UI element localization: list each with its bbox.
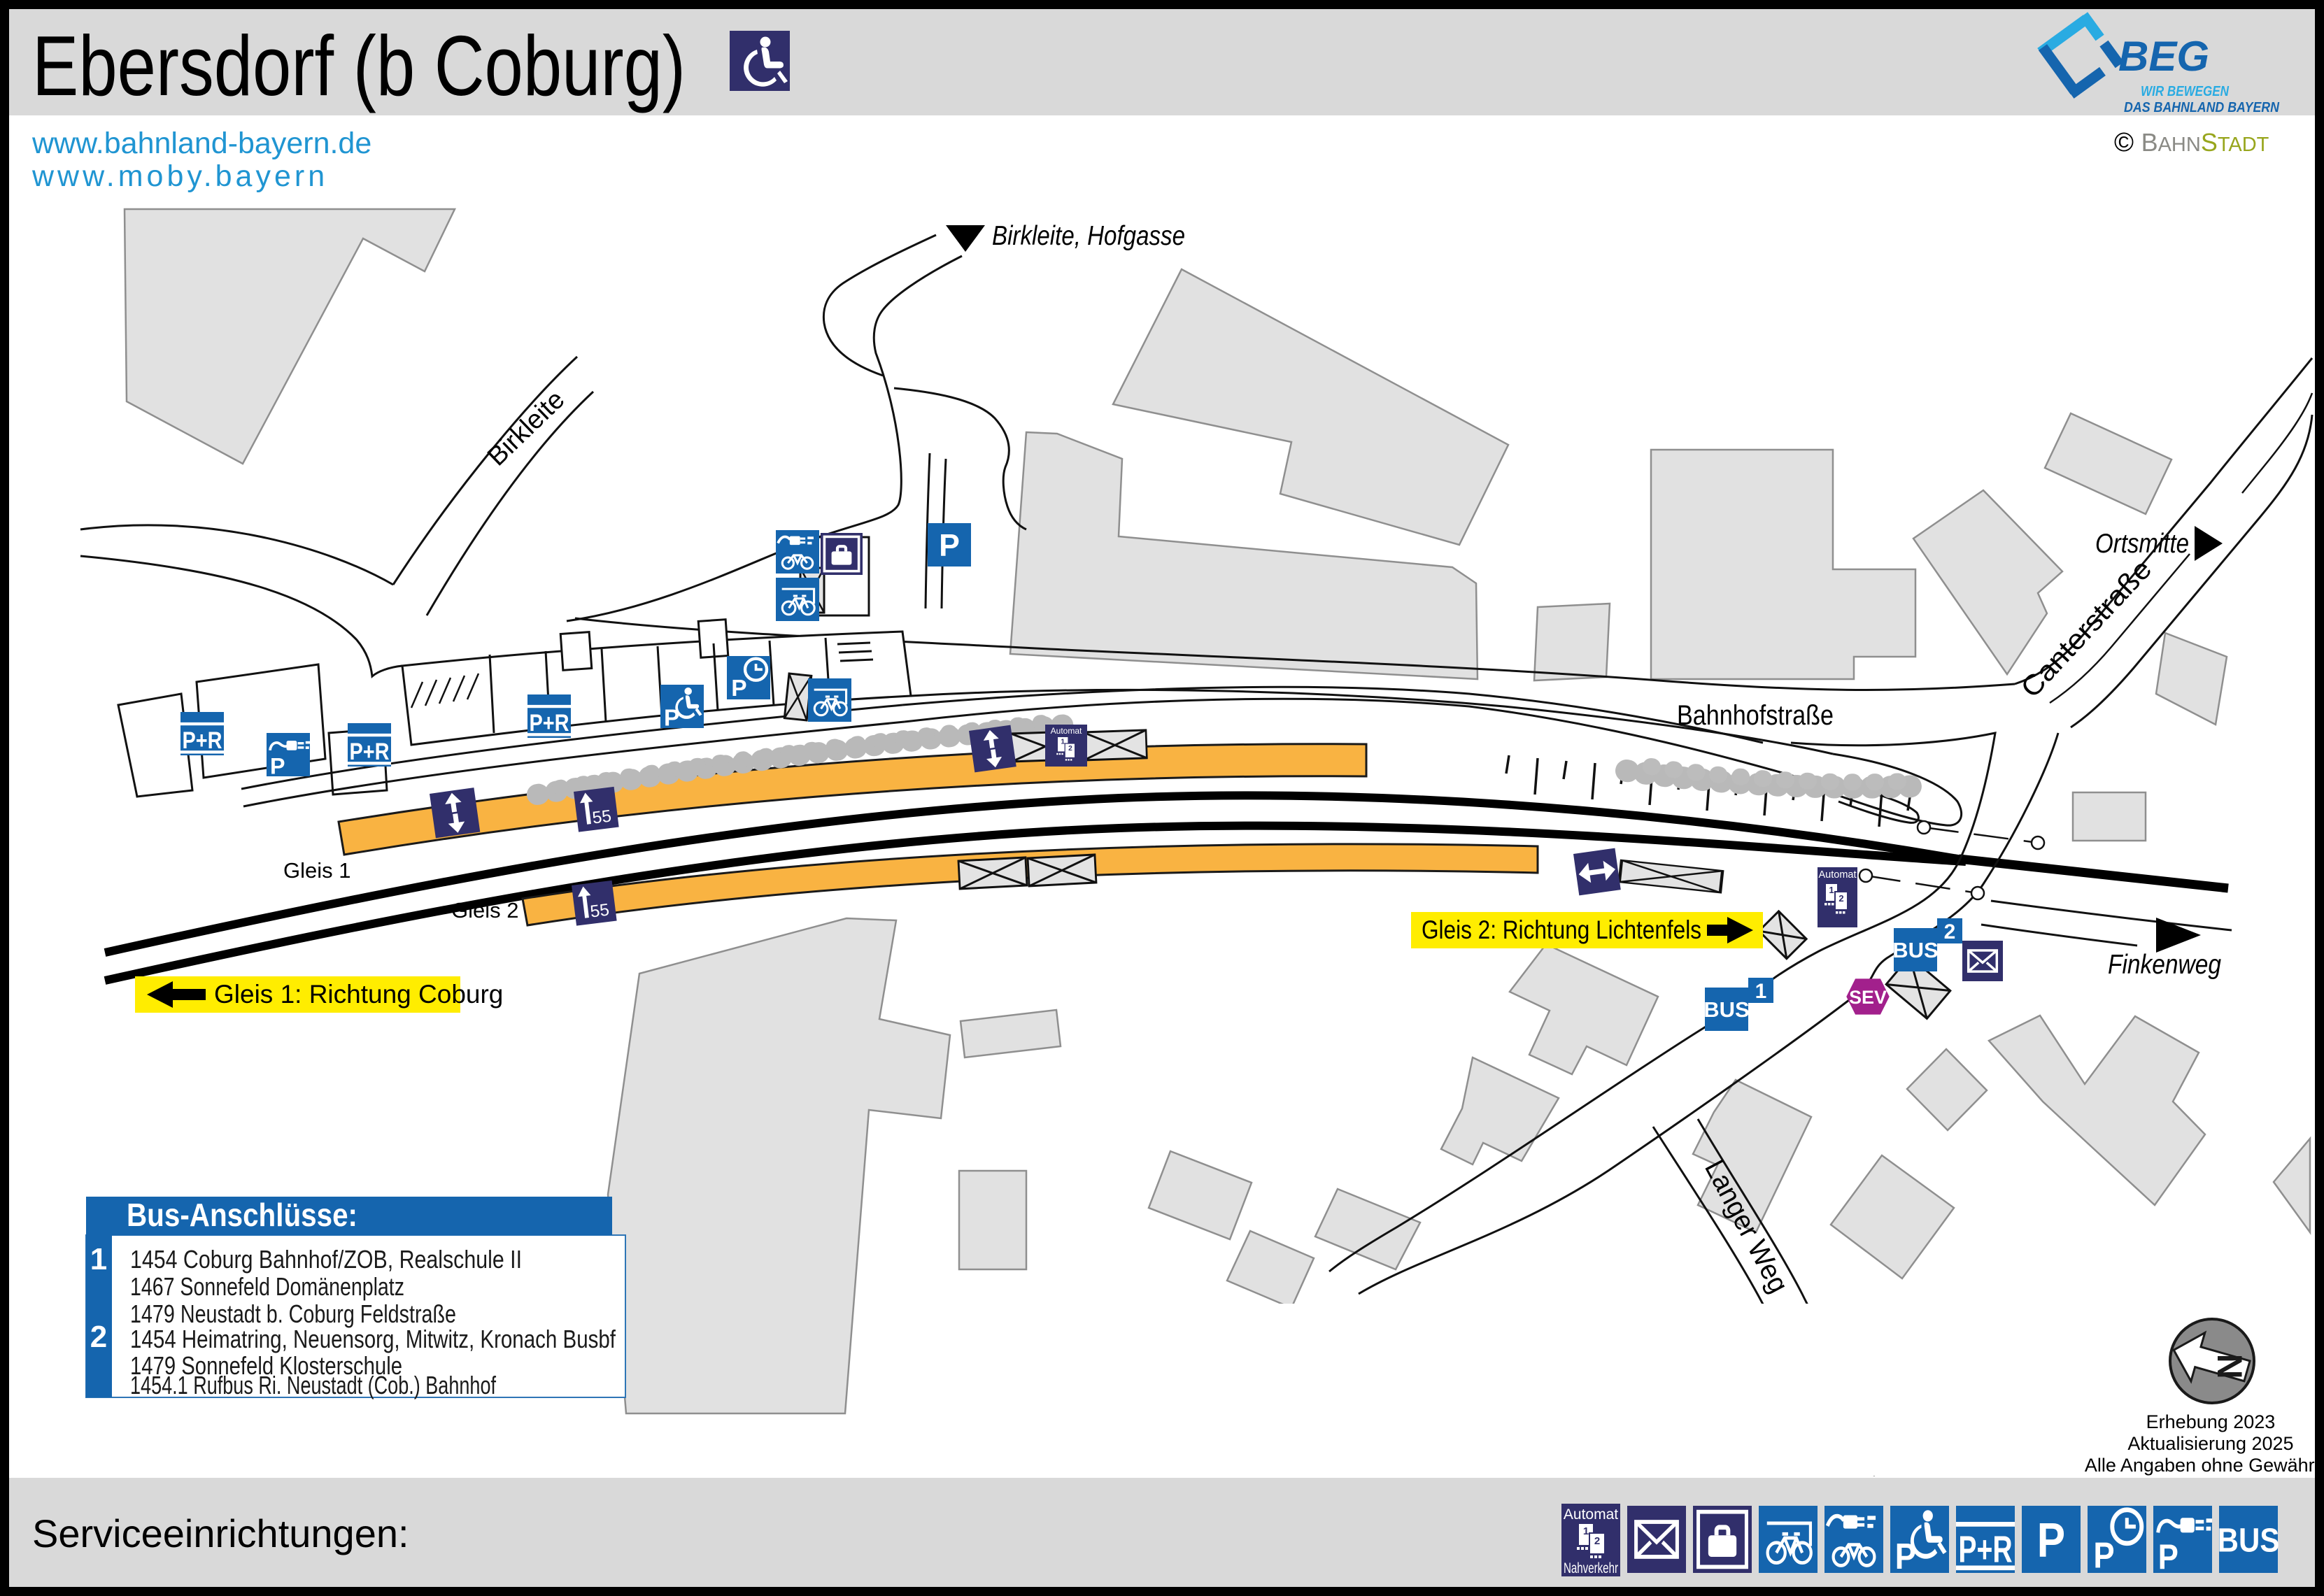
- svg-text:2: 2: [1838, 893, 1843, 904]
- svg-text:2: 2: [1594, 1535, 1600, 1547]
- svg-text:Gleis 1: Richtung Coburg: Gleis 1: Richtung Coburg: [214, 980, 503, 1009]
- svg-text:Aktualisierung 2025: Aktualisierung 2025: [2127, 1433, 2293, 1454]
- svg-text:Ortsmitte: Ortsmitte: [2095, 529, 2189, 559]
- svg-text:1: 1: [90, 1242, 107, 1276]
- svg-text:Erhebung 2023: Erhebung 2023: [2146, 1411, 2276, 1432]
- svg-text:1: 1: [1829, 885, 1834, 895]
- svg-text:Ebersdorf (b Coburg): Ebersdorf (b Coburg): [32, 18, 686, 113]
- svg-text:1: 1: [1583, 1525, 1589, 1537]
- svg-text:2: 2: [1944, 920, 1956, 943]
- svg-text:WIR BEWEGEN: WIR BEWEGEN: [2141, 84, 2229, 99]
- svg-text:1: 1: [1755, 980, 1767, 1003]
- svg-text:www.bahnland-bayern.de: www.bahnland-bayern.de: [31, 127, 371, 160]
- svg-text:Bahnhofstraße: Bahnhofstraße: [1677, 700, 1834, 731]
- svg-text:Automat: Automat: [1819, 869, 1857, 881]
- svg-text:www.moby.bayern: www.moby.bayern: [31, 159, 328, 193]
- svg-text:Nahverkehr: Nahverkehr: [1564, 1560, 1618, 1576]
- svg-text:1467 Sonnefeld Domänenplatz: 1467 Sonnefeld Domänenplatz: [130, 1272, 404, 1301]
- svg-text:Alle Angaben ohne Gewähr!: Alle Angaben ohne Gewähr!: [2085, 1455, 2320, 1476]
- svg-text:1454.1 Rufbus Ri. Neustadt (Co: 1454.1 Rufbus Ri. Neustadt (Cob.) Bahnho…: [130, 1371, 497, 1399]
- svg-text:1454 Heimatring, Neuensorg, Mi: 1454 Heimatring, Neuensorg, Mitwitz, Kro…: [130, 1325, 616, 1353]
- svg-text:1454 Coburg Bahnhof/ZOB, Reals: 1454 Coburg Bahnhof/ZOB, Realschule II: [130, 1245, 522, 1274]
- svg-text:Gleis 2: Gleis 2: [451, 898, 518, 922]
- svg-text:Automat: Automat: [1564, 1506, 1618, 1523]
- svg-text:2: 2: [90, 1320, 107, 1354]
- svg-text:N: N: [2210, 1354, 2249, 1379]
- svg-text:DAS BAHNLAND BAYERN: DAS BAHNLAND BAYERN: [2124, 100, 2279, 115]
- svg-text:Birkleite, Hofgasse: Birkleite, Hofgasse: [992, 221, 1185, 251]
- svg-text:BEG: BEG: [2118, 33, 2209, 80]
- svg-text:Finkenweg: Finkenweg: [2108, 950, 2221, 980]
- svg-text:Bus-Anschlüsse:: Bus-Anschlüsse:: [127, 1197, 357, 1233]
- svg-text:Gleis 1: Gleis 1: [283, 858, 350, 883]
- svg-text:1479 Neustadt b. Coburg Feldst: 1479 Neustadt b. Coburg Feldstraße: [130, 1299, 456, 1328]
- svg-text:Serviceeinrichtungen:: Serviceeinrichtungen:: [32, 1511, 409, 1555]
- svg-text:Gleis 2: Richtung Lichtenfels: Gleis 2: Richtung Lichtenfels: [1422, 915, 1701, 944]
